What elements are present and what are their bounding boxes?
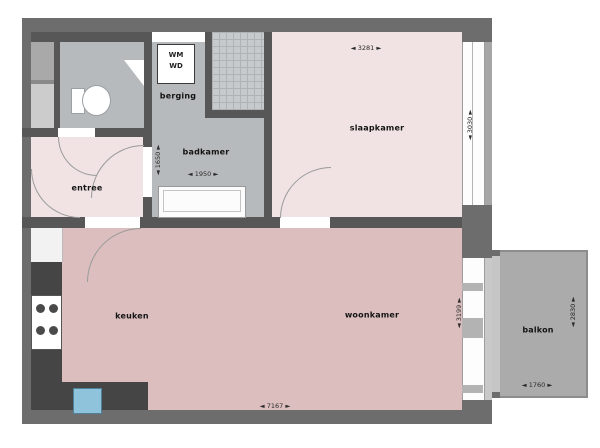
balkon-stub-top xyxy=(492,250,500,256)
dimension-balkon-width: ◄ 1760 ► xyxy=(522,381,553,389)
wall-mid-b xyxy=(140,217,280,228)
wall-top-inner xyxy=(31,32,152,42)
wall-entree-top-left xyxy=(22,128,58,137)
washer-dryer-box: WM WD xyxy=(157,44,195,84)
wall-top xyxy=(22,18,492,32)
washer-label: WM xyxy=(158,50,194,61)
bathtub-fixture xyxy=(158,186,246,218)
room-label-keuken: keuken xyxy=(115,312,149,321)
kitchen-cabinet-white xyxy=(31,228,63,262)
dimension-woonkamer-width: ◄ 7167 ► xyxy=(260,402,291,410)
window-mullion-3 xyxy=(462,385,483,393)
toilet-bowl-fixture xyxy=(82,85,111,116)
room-label-berging: berging xyxy=(160,92,196,101)
bathtub-inner-rim xyxy=(163,190,241,212)
closet-cell-top xyxy=(31,42,54,80)
floorplan: WM WD entree badkamer berging slaapkamer… xyxy=(0,0,600,448)
wall-mid-a xyxy=(22,217,85,228)
kitchen-sink-fixture xyxy=(73,388,102,414)
toilet-room-floor xyxy=(60,42,144,128)
wall-right-bottom xyxy=(462,400,492,424)
balkon-rail-right xyxy=(586,250,588,398)
room-label-woonkamer: woonkamer xyxy=(345,311,399,320)
wall-toilet-berging xyxy=(144,42,152,128)
wall-berging-slaapkamer xyxy=(264,32,272,217)
wall-berging-divider xyxy=(205,32,212,110)
window-mullion-2 xyxy=(462,318,483,338)
balkon-rail-bottom xyxy=(492,396,588,398)
dimension-woonkamer-depth: ◄ 3199 ► xyxy=(455,298,463,329)
room-label-badkamer: badkamer xyxy=(183,148,230,157)
dimension-balkon-depth: ◄ 2830 ► xyxy=(569,297,577,328)
window-mullion-1 xyxy=(462,283,483,291)
stove-burner xyxy=(49,326,58,335)
dimension-slaapkamer-width: ◄ 3281 ► xyxy=(351,44,382,52)
dryer-label: WD xyxy=(158,61,194,72)
kitchen-counter-upper xyxy=(31,262,62,295)
wall-entree-top-right xyxy=(95,128,152,137)
wall-entree-badkamer-stub xyxy=(143,137,152,147)
balkon-stub-bottom xyxy=(492,392,500,398)
stove-burner xyxy=(36,304,45,313)
stove-burner xyxy=(36,326,45,335)
wall-berging-badkamer xyxy=(205,110,264,118)
room-label-entree: entree xyxy=(72,184,103,193)
dimension-slaapkamer-depth: ◄ 3030 ► xyxy=(466,110,474,141)
berging-tile-floor xyxy=(212,32,264,110)
dimension-badkamer-width: ◄ 1950 ► xyxy=(188,170,219,178)
wall-right-mid xyxy=(462,205,492,258)
wall-right-top xyxy=(462,18,492,42)
dimension-badkamer-depth: ◄ 1650 ► xyxy=(154,145,162,176)
wall-entree-badkamer xyxy=(143,197,152,217)
room-label-slaapkamer: slaapkamer xyxy=(350,124,404,133)
closet-cell-bottom xyxy=(31,84,54,128)
balkon-threshold xyxy=(492,250,500,398)
balkon-rail-top xyxy=(492,250,588,252)
stove-burner xyxy=(49,304,58,313)
wall-mid-c xyxy=(330,217,462,228)
room-label-balkon: balkon xyxy=(522,326,553,335)
stove-fixture xyxy=(31,295,62,350)
kitchen-counter-lower xyxy=(31,350,62,382)
